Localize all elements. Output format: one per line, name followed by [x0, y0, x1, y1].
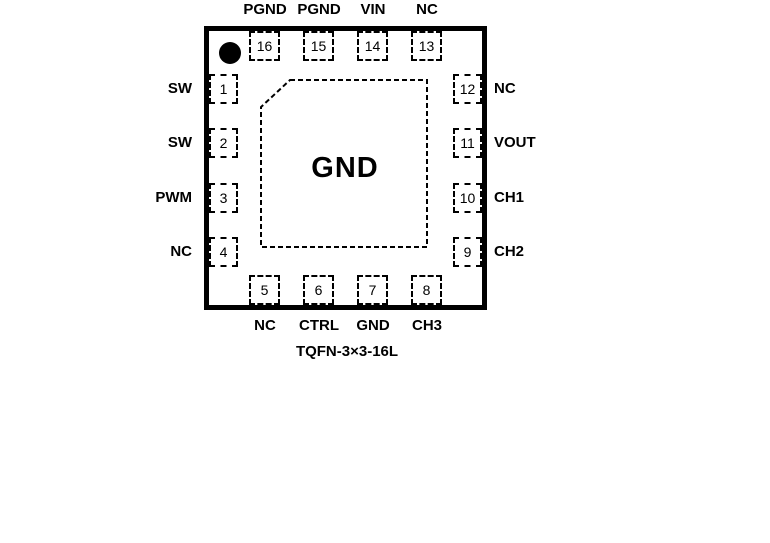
- pin-number-4: 4: [220, 244, 228, 260]
- pin-label-sw-1: SW: [95, 80, 192, 98]
- pin-6: 6: [303, 275, 334, 305]
- pin-number-10: 10: [460, 190, 476, 206]
- pin-number-12: 12: [460, 81, 476, 97]
- pin-1: 1: [209, 74, 238, 104]
- pin-number-13: 13: [419, 38, 435, 54]
- pin-label-nc-12: NC: [494, 80, 591, 98]
- pin-15: 15: [303, 31, 334, 61]
- pin-label-nc-13: NC: [382, 1, 472, 19]
- pin-13: 13: [411, 31, 442, 61]
- pin-5: 5: [249, 275, 280, 305]
- pin-number-11: 11: [460, 135, 475, 151]
- pin-label-ch3-8: CH3: [382, 317, 472, 335]
- pin-label-nc-4: NC: [95, 243, 192, 261]
- pin-number-6: 6: [315, 282, 323, 298]
- pin-8: 8: [411, 275, 442, 305]
- pin-label-vout-11: VOUT: [494, 134, 591, 152]
- pin-number-7: 7: [369, 282, 377, 298]
- pin-number-9: 9: [464, 244, 472, 260]
- pin-14: 14: [357, 31, 388, 61]
- pin-label-sw-2: SW: [95, 134, 192, 152]
- pin-9: 9: [453, 237, 482, 267]
- pin-2: 2: [209, 128, 238, 158]
- pin-number-15: 15: [311, 38, 327, 54]
- pinout-diagram: PGND PGND VIN NC GND 16 15 14 13 1 2 3 4…: [0, 0, 770, 543]
- pin-10: 10: [453, 183, 482, 213]
- package-name-caption: TQFN-3×3-16L: [247, 343, 447, 360]
- pin-number-16: 16: [257, 38, 273, 54]
- pin-number-2: 2: [220, 135, 228, 151]
- pin-3: 3: [209, 183, 238, 213]
- pin-number-1: 1: [220, 81, 228, 97]
- pin-label-ch2-9: CH2: [494, 243, 591, 261]
- pin-number-14: 14: [365, 38, 381, 54]
- pin-4: 4: [209, 237, 238, 267]
- pin-16: 16: [249, 31, 280, 61]
- pin1-indicator-dot: [219, 42, 241, 64]
- pin-12: 12: [453, 74, 482, 104]
- pin-number-8: 8: [423, 282, 431, 298]
- pin-label-ch1-10: CH1: [494, 189, 591, 207]
- pin-7: 7: [357, 275, 388, 305]
- pin-number-5: 5: [261, 282, 269, 298]
- thermal-pad-label: GND: [255, 152, 435, 185]
- pin-11: 11: [453, 128, 482, 158]
- pin-label-pwm-3: PWM: [95, 189, 192, 207]
- pin-number-3: 3: [220, 190, 228, 206]
